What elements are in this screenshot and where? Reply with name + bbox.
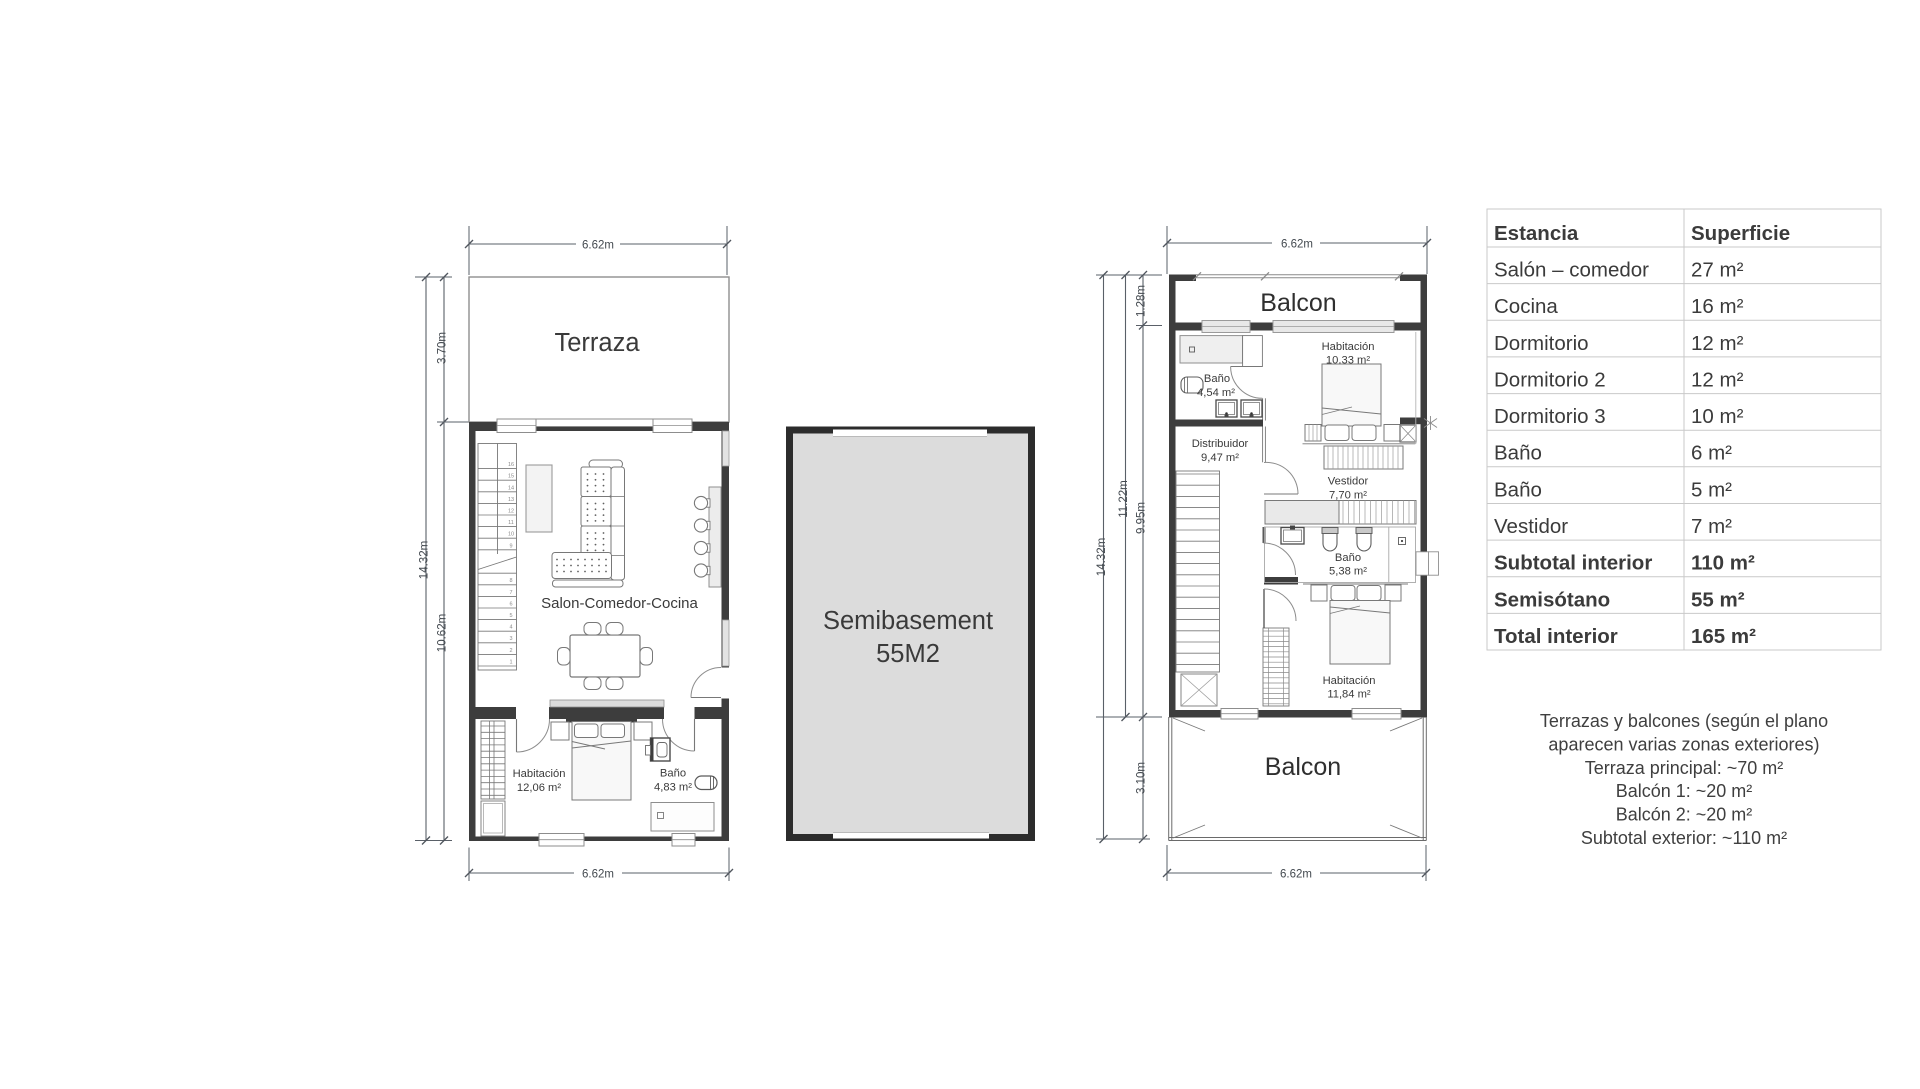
svg-text:Cocina: Cocina (1494, 295, 1558, 318)
svg-text:Baño: Baño (1335, 552, 1361, 564)
svg-text:1: 1 (509, 659, 512, 665)
svg-text:55 m²: 55 m² (1691, 588, 1745, 611)
svg-text:14.32m: 14.32m (419, 541, 431, 579)
svg-text:Terraza principal: ~70 m²: Terraza principal: ~70 m² (1585, 758, 1784, 778)
svg-text:9,47 m²: 9,47 m² (1201, 452, 1239, 464)
svg-text:10.62m: 10.62m (437, 614, 449, 652)
svg-text:Salon-Comedor-Cocina: Salon-Comedor-Cocina (541, 595, 698, 612)
svg-text:12: 12 (508, 509, 514, 515)
svg-text:12,06 m²: 12,06 m² (517, 782, 561, 794)
svg-text:4,54 m²: 4,54 m² (1197, 387, 1235, 399)
svg-text:Balcón 2: ~20 m²: Balcón 2: ~20 m² (1616, 805, 1753, 825)
svg-text:9: 9 (509, 543, 512, 549)
svg-text:Distribuidor: Distribuidor (1192, 438, 1249, 450)
svg-text:Balcón 1: ~20 m²: Balcón 1: ~20 m² (1616, 781, 1753, 801)
svg-text:12 m²: 12 m² (1691, 332, 1744, 355)
svg-text:1.28m: 1.28m (1136, 285, 1148, 317)
svg-text:11: 11 (508, 520, 514, 526)
svg-text:Superficie: Superficie (1691, 222, 1790, 245)
svg-text:4,83 m²: 4,83 m² (654, 782, 692, 794)
svg-text:6.62m: 6.62m (582, 869, 614, 881)
svg-text:Total interior: Total interior (1494, 625, 1618, 648)
svg-text:4: 4 (509, 625, 512, 631)
svg-text:Subtotal interior: Subtotal interior (1494, 552, 1652, 575)
svg-text:12 m²: 12 m² (1691, 368, 1744, 391)
svg-text:13: 13 (508, 497, 514, 503)
svg-text:Balcon: Balcon (1265, 753, 1341, 781)
svg-text:Salón – comedor: Salón – comedor (1494, 259, 1649, 282)
svg-text:6.62m: 6.62m (582, 240, 614, 252)
svg-text:Balcon: Balcon (1260, 289, 1336, 317)
svg-text:6: 6 (509, 601, 512, 607)
svg-text:11,84 m²: 11,84 m² (1327, 689, 1371, 701)
svg-text:Terrazas y balcones (según el: Terrazas y balcones (según el plano (1540, 711, 1828, 731)
svg-text:16 m²: 16 m² (1691, 295, 1744, 318)
svg-text:Subtotal exterior: ~110 m²: Subtotal exterior: ~110 m² (1581, 828, 1787, 848)
svg-text:14: 14 (508, 485, 514, 491)
svg-text:Terraza: Terraza (554, 329, 640, 357)
svg-text:Dormitorio: Dormitorio (1494, 332, 1589, 355)
svg-text:6.62m: 6.62m (1280, 869, 1312, 881)
svg-text:110 m²: 110 m² (1691, 552, 1755, 575)
svg-text:165 m²: 165 m² (1691, 625, 1756, 648)
svg-text:Baño: Baño (1494, 442, 1542, 465)
svg-text:Semibasement: Semibasement (823, 607, 993, 635)
svg-text:5: 5 (509, 613, 512, 619)
svg-text:55M2: 55M2 (876, 640, 940, 668)
svg-text:7: 7 (509, 590, 512, 596)
svg-text:Semisótano: Semisótano (1494, 588, 1610, 611)
svg-text:6.62m: 6.62m (1281, 239, 1313, 251)
svg-text:3: 3 (509, 636, 512, 642)
svg-text:Baño: Baño (1494, 478, 1542, 501)
svg-text:7,70 m²: 7,70 m² (1329, 490, 1367, 502)
svg-text:Estancia: Estancia (1494, 222, 1579, 245)
svg-text:6 m²: 6 m² (1691, 442, 1732, 465)
svg-text:7 m²: 7 m² (1691, 515, 1732, 538)
svg-text:Dormitorio 3: Dormitorio 3 (1494, 405, 1606, 428)
svg-text:Baño: Baño (660, 768, 686, 780)
svg-text:2: 2 (509, 648, 512, 654)
svg-text:27 m²: 27 m² (1691, 259, 1744, 282)
svg-text:10: 10 (508, 532, 514, 538)
svg-text:11.22m: 11.22m (1118, 480, 1130, 518)
svg-text:Habitación: Habitación (1322, 341, 1375, 353)
svg-text:10 m²: 10 m² (1691, 405, 1744, 428)
svg-text:15: 15 (508, 474, 514, 480)
svg-text:3.70m: 3.70m (437, 332, 449, 364)
svg-text:aparecen varias zonas exterior: aparecen varias zonas exteriores) (1548, 734, 1819, 754)
svg-text:Baño: Baño (1204, 373, 1230, 385)
svg-text:5,38 m²: 5,38 m² (1329, 566, 1367, 578)
svg-text:Habitación: Habitación (513, 768, 566, 780)
svg-text:Vestidor: Vestidor (1328, 476, 1369, 488)
svg-text:Habitación: Habitación (1323, 675, 1376, 687)
svg-text:3.10m: 3.10m (1136, 762, 1148, 794)
svg-text:14.32m: 14.32m (1096, 538, 1108, 576)
svg-text:9.95m: 9.95m (1136, 502, 1148, 534)
svg-text:16: 16 (508, 462, 514, 468)
svg-text:Dormitorio 2: Dormitorio 2 (1494, 368, 1606, 391)
svg-text:5 m²: 5 m² (1691, 478, 1732, 501)
svg-text:8: 8 (509, 578, 512, 584)
svg-text:Vestidor: Vestidor (1494, 515, 1568, 538)
